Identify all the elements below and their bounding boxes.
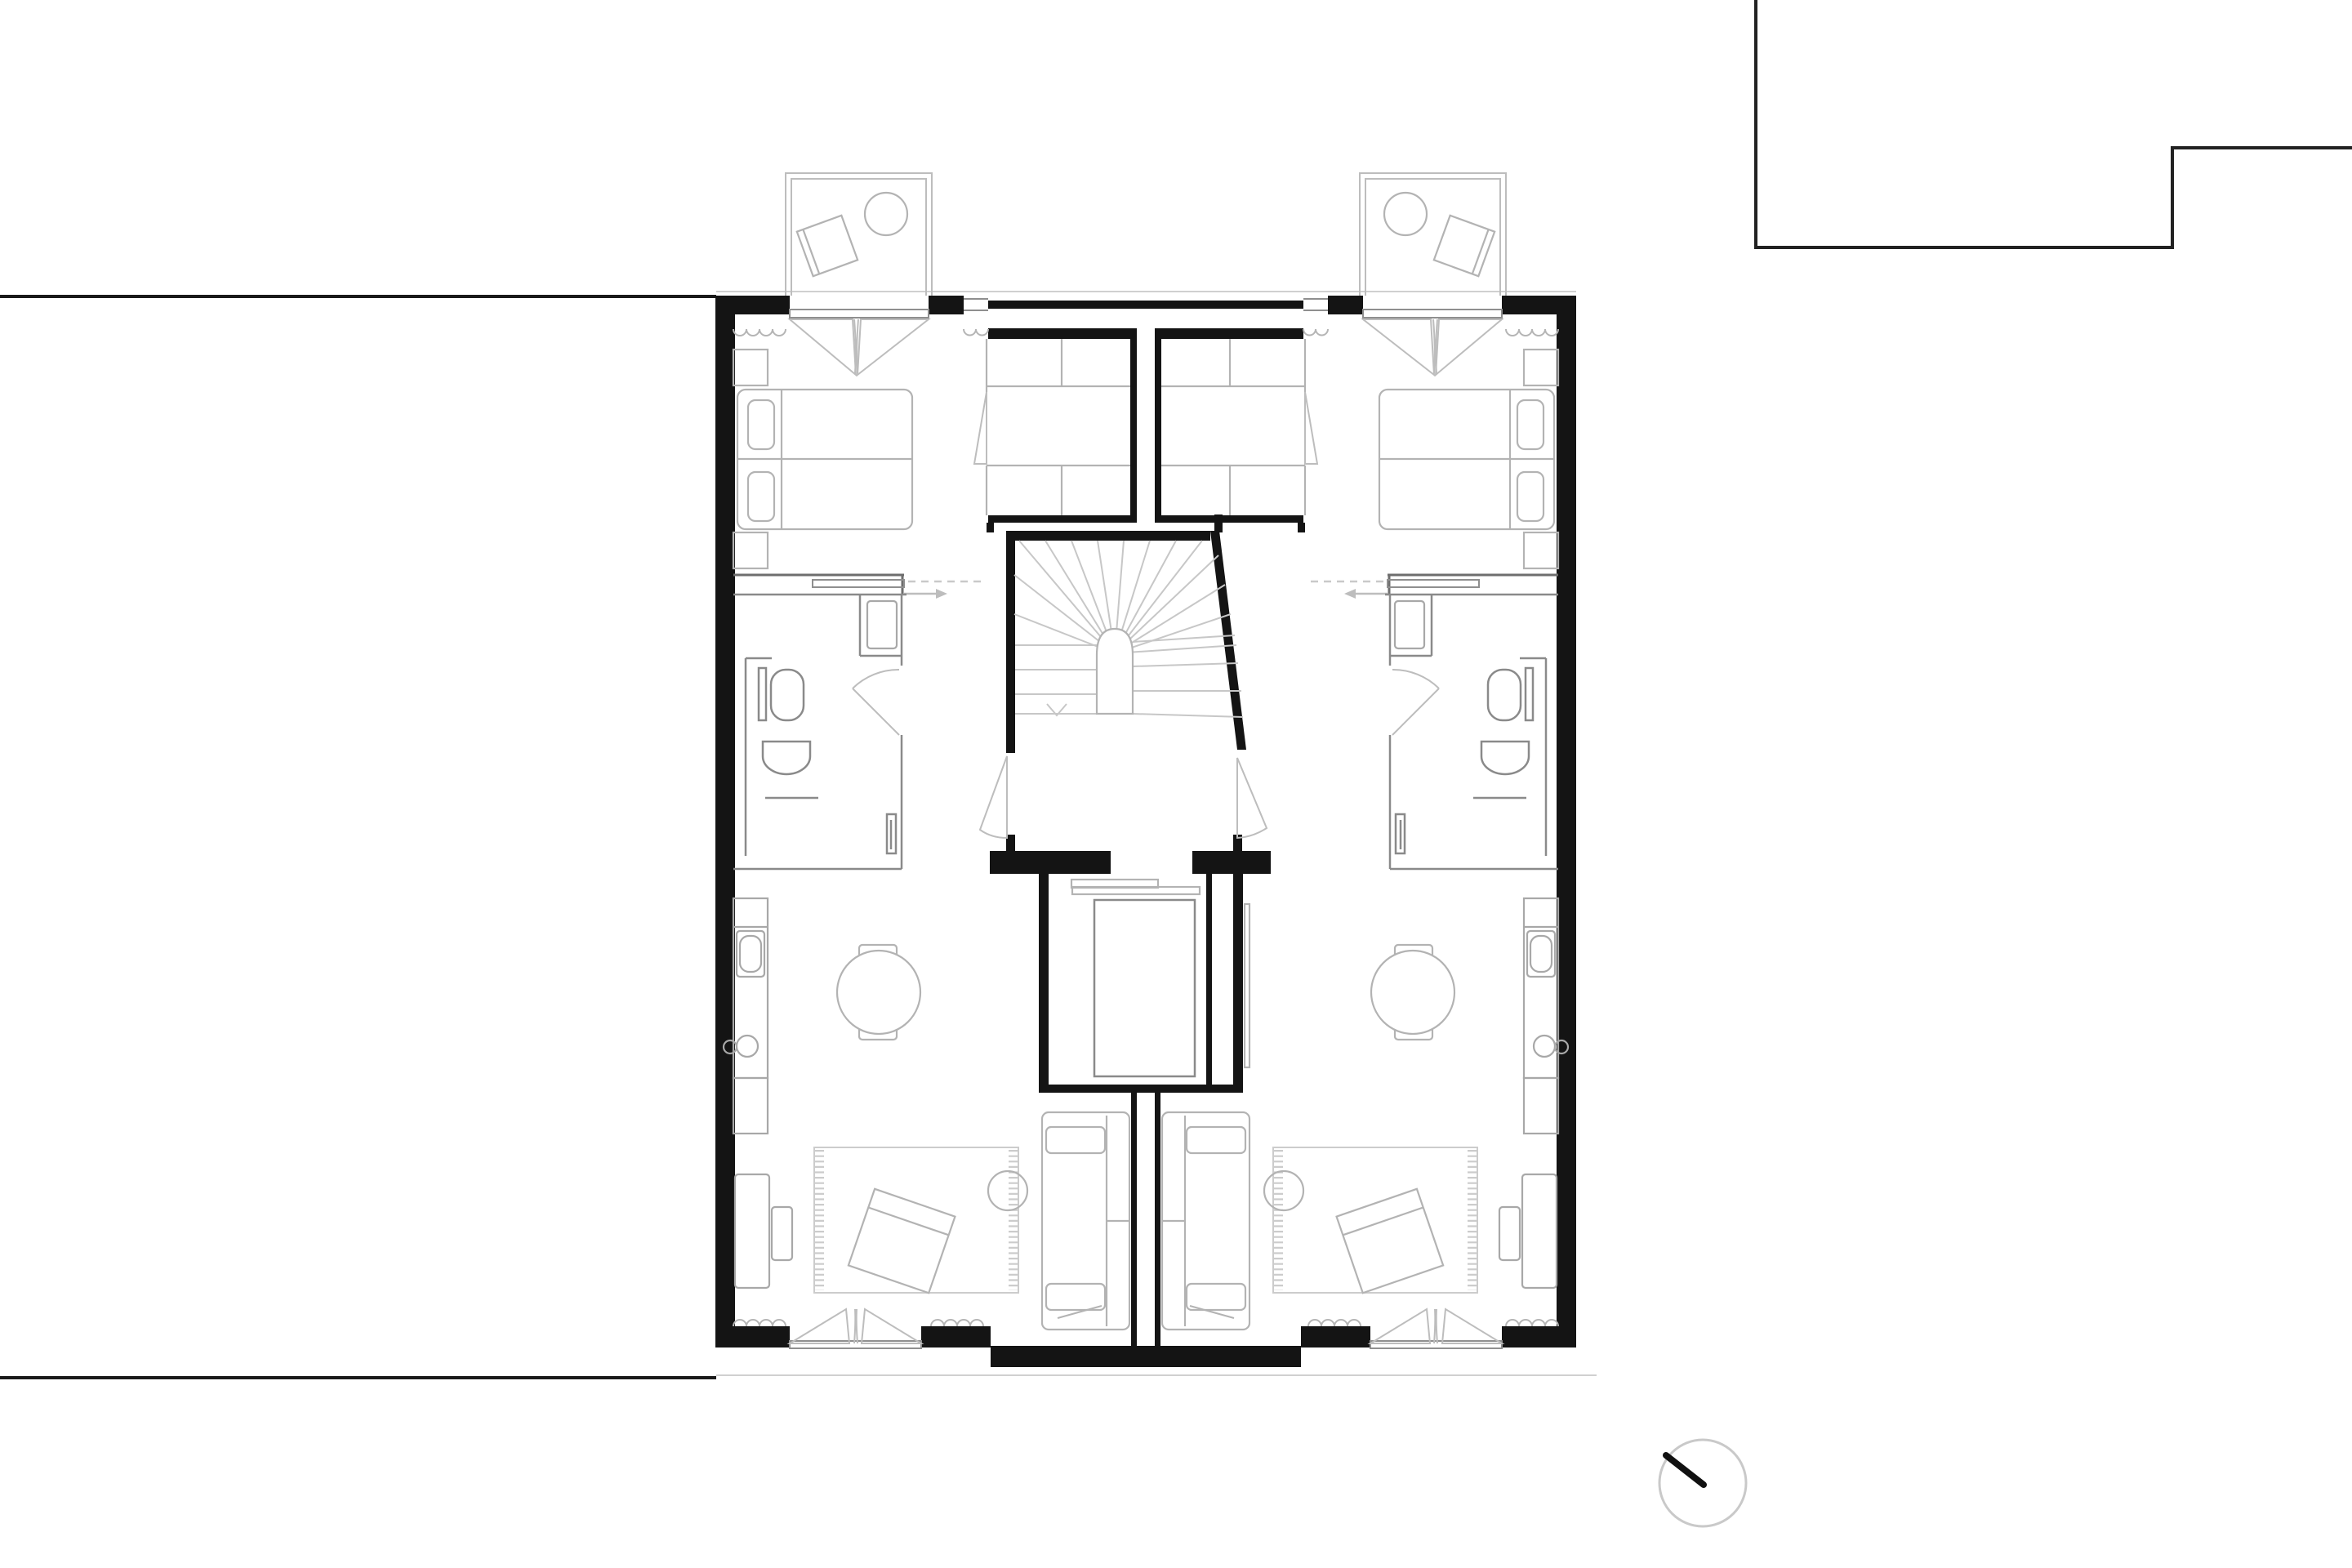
stair-wall-left bbox=[1006, 531, 1015, 753]
living-room bbox=[735, 1112, 1129, 1330]
wash-basin bbox=[763, 742, 810, 774]
north-window-small bbox=[964, 299, 988, 336]
door-sill bbox=[790, 1341, 921, 1348]
part bbox=[857, 1309, 857, 1343]
exterior-wall-south-centre bbox=[991, 1346, 1147, 1367]
shaft-wall-inner-leaf bbox=[1206, 874, 1212, 1090]
treads-left bbox=[1015, 645, 1097, 714]
toilet-bowl bbox=[771, 670, 804, 720]
shaft-wall-top-right bbox=[1192, 851, 1271, 874]
closet-bottom-wall bbox=[988, 515, 1137, 523]
shaft-wall-bottom bbox=[1039, 1085, 1243, 1093]
balcony-chair bbox=[797, 216, 857, 276]
balcony-railing-outer bbox=[786, 173, 932, 296]
stair-door-left-unit[interactable] bbox=[980, 756, 1007, 838]
north-arrow bbox=[1659, 1440, 1746, 1526]
door-sill bbox=[790, 310, 929, 318]
exterior-wall-north-mid bbox=[929, 296, 964, 314]
door-leaf-swing-right bbox=[862, 1309, 921, 1343]
sofa-cushion bbox=[1046, 1284, 1105, 1310]
door-arc bbox=[853, 670, 899, 688]
shaft-wall-left bbox=[1039, 874, 1049, 1093]
ottoman bbox=[849, 1189, 955, 1293]
floor-lamp bbox=[988, 1171, 1027, 1210]
party-wall-upper-leaf bbox=[1130, 328, 1137, 523]
part bbox=[740, 936, 761, 972]
compass-needle-icon bbox=[1666, 1455, 1704, 1485]
garden-french-door[interactable] bbox=[790, 1309, 921, 1348]
balcony-french-door[interactable] bbox=[790, 310, 929, 375]
closet-wall-stub bbox=[987, 523, 994, 532]
built-in-closet bbox=[974, 339, 1130, 515]
unit-left bbox=[715, 173, 1147, 1367]
pillow bbox=[748, 472, 774, 521]
stair-door-right-unit[interactable] bbox=[1237, 758, 1267, 838]
part bbox=[868, 1207, 948, 1235]
stair-core bbox=[980, 514, 1271, 1093]
curtain-scallops-north-left bbox=[733, 329, 786, 336]
part bbox=[854, 1309, 855, 1343]
toilet-cistern bbox=[759, 668, 766, 720]
party-wall-lower-leaf bbox=[1131, 1093, 1137, 1346]
exterior-wall-south-mid bbox=[921, 1326, 991, 1347]
bedroom bbox=[733, 350, 912, 568]
rug bbox=[814, 1147, 1018, 1293]
neighbour-building-outline bbox=[1756, 0, 2352, 247]
balcony bbox=[786, 173, 932, 296]
site-context bbox=[0, 0, 2352, 1526]
footstool bbox=[772, 1207, 792, 1260]
floor-plan-page bbox=[0, 0, 2352, 1568]
pillow bbox=[748, 400, 774, 449]
exterior-wall-west bbox=[715, 296, 735, 1330]
dining-area bbox=[837, 945, 920, 1040]
exterior-wall-north-centre-inner bbox=[988, 328, 1134, 339]
rug-outline bbox=[814, 1147, 1018, 1293]
closet-door-swing[interactable] bbox=[974, 392, 987, 464]
exterior-wall-north-corner bbox=[715, 296, 790, 314]
nightstand bbox=[733, 532, 768, 568]
bathroom-door[interactable] bbox=[853, 670, 899, 735]
kitchen-cabinet bbox=[733, 1078, 768, 1134]
kitchen-sink bbox=[737, 1036, 758, 1057]
armchair bbox=[735, 1174, 769, 1288]
shaft-wall-top-left bbox=[990, 851, 1111, 874]
sofa bbox=[1042, 1112, 1129, 1330]
balcony-table bbox=[865, 193, 907, 235]
exterior-wall-south-corner bbox=[715, 1326, 790, 1347]
entry-arrowhead-icon bbox=[936, 589, 947, 599]
door-leaf bbox=[853, 688, 899, 735]
nightstand bbox=[733, 350, 768, 385]
newel-arch bbox=[1097, 629, 1133, 714]
dining-table bbox=[837, 951, 920, 1034]
door-leaf-swing-left bbox=[790, 319, 856, 375]
sofa-throw bbox=[1058, 1306, 1102, 1318]
floor-void bbox=[1094, 900, 1195, 1076]
curtain-scallops-north-right bbox=[964, 329, 988, 336]
sliding-door[interactable] bbox=[813, 580, 904, 587]
part bbox=[1214, 514, 1223, 532]
floor-plan-canvas bbox=[0, 0, 2352, 1568]
curtain-scallops-south-left bbox=[733, 1320, 786, 1326]
part bbox=[849, 1189, 955, 1293]
door-leaf-swing-right bbox=[857, 319, 929, 375]
exterior-wall-north-centre-outer bbox=[988, 301, 1147, 309]
part bbox=[803, 229, 819, 274]
door-leaf bbox=[1245, 904, 1249, 1067]
light-well bbox=[990, 851, 1271, 1093]
sofa-cushion bbox=[1046, 1127, 1105, 1153]
unit-right bbox=[1145, 173, 1576, 1367]
part bbox=[797, 216, 857, 276]
bathroom bbox=[733, 595, 906, 869]
curtain-scallops-south-right bbox=[931, 1320, 983, 1326]
stair-wall-top bbox=[1006, 531, 1210, 541]
shaft-wall-right bbox=[1233, 874, 1243, 1093]
door-leaf-swing-left bbox=[790, 1309, 849, 1343]
stair-treads bbox=[1014, 541, 1243, 717]
shower-tray bbox=[867, 601, 897, 648]
balcony-railing-inner bbox=[791, 179, 926, 296]
